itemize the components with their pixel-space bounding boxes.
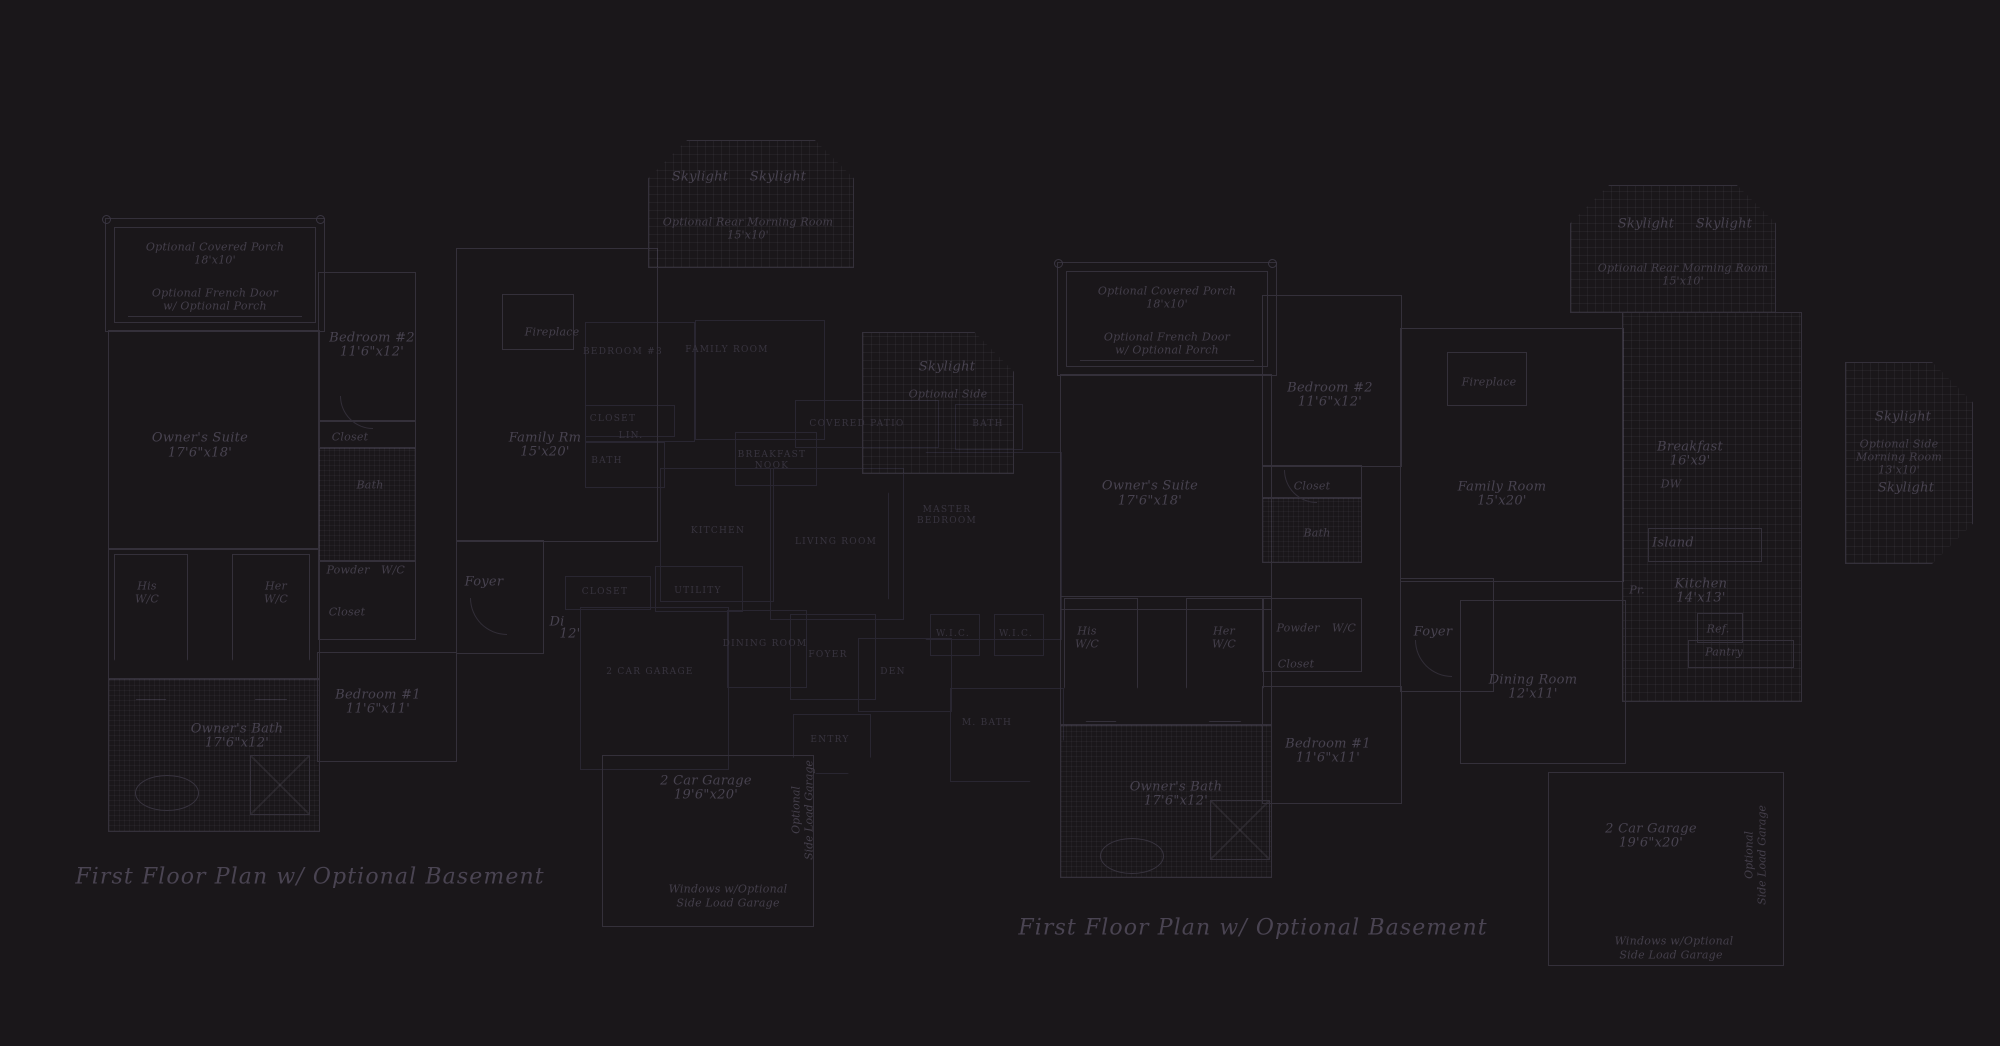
room-label: Skylight <box>672 170 728 185</box>
room-label: 15'x20' <box>520 445 569 460</box>
room-label: Closet <box>332 431 368 444</box>
room-label: Skylight <box>1878 481 1934 496</box>
room-label: Island <box>1652 536 1694 551</box>
room-label: Skylight <box>919 360 975 375</box>
room-label: Skylight <box>1875 410 1931 425</box>
bathtub <box>135 775 199 811</box>
room-label: Bath <box>356 479 383 492</box>
room-label: Optional Side <box>909 388 988 401</box>
room-label: Optional Side <box>1860 438 1939 451</box>
room-label: Foyer <box>465 575 504 590</box>
room-label: 2 Car Garage <box>1605 822 1697 837</box>
room-label: 18'x10' <box>1146 298 1188 311</box>
floor-plan-sheet: Optional Covered Porch18'x10'Optional Fr… <box>0 0 2000 1046</box>
room-label: 18'x10' <box>194 254 236 267</box>
bathtub <box>1100 838 1164 874</box>
room-label: 12' <box>560 627 581 642</box>
room-label: Windows w/Optional <box>669 883 788 896</box>
room-label: Bedroom #2 <box>329 331 415 346</box>
room-label: 2 Car Garage <box>660 774 752 789</box>
room-label: Powder <box>326 564 369 577</box>
shower <box>250 755 310 815</box>
room-label: 19'6"x20' <box>1619 836 1683 851</box>
room-label: Optional Covered Porch <box>146 241 284 254</box>
room-label: Family Rm <box>509 431 581 446</box>
room-label: Optional French Door <box>152 287 278 300</box>
room-label: 17'6"x12' <box>1144 794 1208 809</box>
room-label: w/ Optional Porch <box>1115 344 1219 357</box>
room-label: Owner's Suite <box>1102 479 1198 494</box>
room-label: 14'x13' <box>1676 591 1725 606</box>
room-label: Closet <box>1278 658 1314 671</box>
room-label: Optional <box>1743 831 1756 879</box>
room-label: FOYER <box>808 650 847 660</box>
his-wc-room <box>1064 598 1138 722</box>
room-label: Fireplace <box>1462 376 1517 389</box>
room-label: Side Load Garage <box>803 760 816 860</box>
room-label: COVERED PATIO <box>809 419 904 429</box>
room-label: Pantry <box>1705 646 1743 659</box>
room-label: Pr. <box>1629 584 1645 597</box>
room-label: 11'6"x11' <box>1296 751 1360 766</box>
room-label: Bath <box>1303 527 1330 540</box>
room-label: Foyer <box>1414 625 1453 640</box>
rear-morning-room <box>1570 185 1776 313</box>
room-label: Side Load Garage <box>676 897 779 910</box>
room-label: Optional Covered Porch <box>1098 285 1236 298</box>
room-label: DEN <box>880 667 905 677</box>
room-label: 16'x9' <box>1670 454 1711 469</box>
room-label: W/C <box>264 593 288 606</box>
room-label: ENTRY <box>810 735 849 745</box>
room-label: Skylight <box>1618 217 1674 232</box>
room-label: His <box>1077 625 1096 638</box>
room-label: Closet <box>329 606 365 619</box>
porch-pillar <box>102 215 111 224</box>
her-wc-room <box>1186 598 1264 722</box>
wall <box>888 452 1062 640</box>
room-label: Optional <box>790 786 803 834</box>
fireplace-box <box>502 294 574 350</box>
room-label: Windows w/Optional <box>1615 935 1734 948</box>
room-label: M. BATH <box>962 718 1012 728</box>
room-label: Fireplace <box>525 326 580 339</box>
room-label: 19'6"x20' <box>674 788 738 803</box>
room-label: Side Load Garage <box>1756 805 1769 905</box>
room-label: Bedroom #1 <box>335 688 421 703</box>
french-door-line <box>128 316 302 317</box>
room-label: Owner's Suite <box>152 431 248 446</box>
wall <box>580 607 729 770</box>
right-plan-title: First Floor Plan w/ Optional Basement <box>1018 916 1487 941</box>
family-room-body <box>456 248 658 542</box>
room-label: w/ Optional Porch <box>163 300 267 313</box>
room-label: Kitchen <box>1675 577 1728 592</box>
room-label: BATH <box>972 419 1004 429</box>
room-label: Morning Room <box>1856 451 1942 464</box>
shower <box>1210 800 1270 860</box>
room-label: LIVING ROOM <box>795 537 877 547</box>
room-label: 17'6"x18' <box>1118 494 1182 509</box>
room-label: W/C <box>1075 638 1099 651</box>
room-label: LIN. <box>619 431 644 441</box>
room-label: 12'x11' <box>1508 687 1557 702</box>
room-label: W/C <box>135 593 159 606</box>
room-label: BATH <box>591 456 623 466</box>
left-plan-title: First Floor Plan w/ Optional Basement <box>75 865 544 890</box>
room-label: BEDROOM #3 <box>583 347 663 357</box>
room-label: FAMILY ROOM <box>685 345 769 355</box>
room-label: Family Room <box>1458 480 1547 495</box>
room-label: Her <box>265 580 287 593</box>
room-label: CLOSET <box>590 414 637 424</box>
room-label: Breakfast <box>1657 440 1723 455</box>
room-label: Skylight <box>1696 217 1752 232</box>
room-label: BEDROOM <box>917 516 977 526</box>
room-label: W.I.C. <box>936 629 970 639</box>
room-label: 15'x20' <box>1477 494 1526 509</box>
room-label: His <box>137 580 156 593</box>
foyer-room <box>456 540 544 654</box>
room-label: Powder <box>1276 622 1319 635</box>
room-label: Dining Room <box>1489 673 1578 688</box>
room-label: 11'6"x12' <box>340 345 404 360</box>
room-label: Optional Rear Morning Room <box>663 216 833 229</box>
room-label: Optional Rear Morning Room <box>1598 262 1768 275</box>
room-label: 2 CAR GARAGE <box>606 667 693 677</box>
room-label: Optional French Door <box>1104 331 1230 344</box>
room-label: Ref. <box>1707 623 1730 636</box>
room-label: W/C <box>1332 622 1356 635</box>
room-label: Side Load Garage <box>1619 949 1722 962</box>
room-label: CLOSET <box>582 587 629 597</box>
room-label: Her <box>1213 625 1235 638</box>
room-label: KITCHEN <box>691 526 745 536</box>
room-label: DW <box>1661 478 1682 491</box>
porch-pillar <box>1268 259 1277 268</box>
room-label: 11'6"x12' <box>1298 395 1362 410</box>
french-door-line <box>1080 360 1254 361</box>
room-label: 15'x10' <box>727 229 769 242</box>
room-label: NOOK <box>755 461 789 471</box>
room-label: W/C <box>381 564 405 577</box>
bedroom2-bath <box>318 447 416 562</box>
room-label: Owner's Bath <box>191 722 283 737</box>
room-label: 13'x10' <box>1878 464 1920 477</box>
room-label: Bedroom #1 <box>1285 737 1371 752</box>
porch-pillar <box>316 215 325 224</box>
room-label: 11'6"x11' <box>346 702 410 717</box>
room-label: MASTER <box>923 505 972 515</box>
room-label: 15'x10' <box>1662 275 1704 288</box>
room-label: W.I.C. <box>999 629 1033 639</box>
room-label: Skylight <box>750 170 806 185</box>
porch-pillar <box>1054 259 1063 268</box>
room-label: W/C <box>1212 638 1236 651</box>
room-label: Bedroom #2 <box>1287 381 1373 396</box>
room-label: 17'6"x12' <box>205 736 269 751</box>
room-label: UTILITY <box>674 586 721 596</box>
room-label: Owner's Bath <box>1130 780 1222 795</box>
room-label: BREAKFAST <box>738 450 807 460</box>
room-label: 17'6"x18' <box>168 446 232 461</box>
rear-morning-room <box>648 140 854 268</box>
side-morning-room <box>862 332 1014 474</box>
room-label: Closet <box>1294 480 1330 493</box>
room-label: DINING ROOM <box>723 639 808 649</box>
wall <box>950 688 1064 782</box>
